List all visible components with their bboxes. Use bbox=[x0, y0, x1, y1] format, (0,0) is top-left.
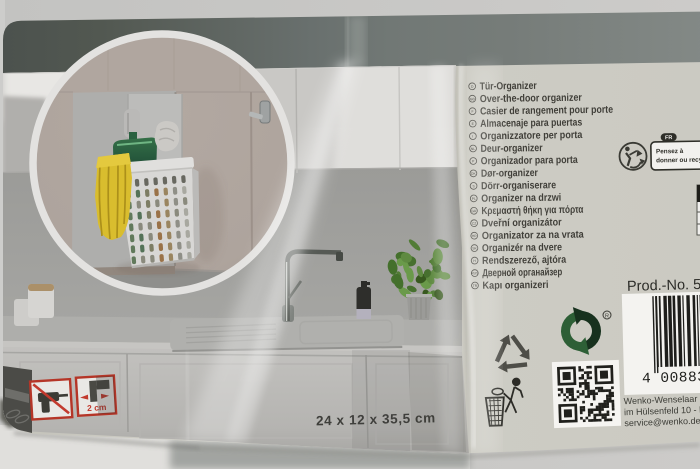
svg-text:Pensez à: Pensez à bbox=[656, 148, 684, 155]
svg-text:R: R bbox=[605, 314, 609, 320]
svg-text:donner ou recy: donner ou recy bbox=[656, 157, 700, 165]
svg-text:Prod.-No. 52: Prod.-No. 52 bbox=[627, 277, 700, 295]
svg-text:FR: FR bbox=[665, 135, 672, 141]
svg-text:4 008838: 4 008838 bbox=[642, 370, 700, 388]
